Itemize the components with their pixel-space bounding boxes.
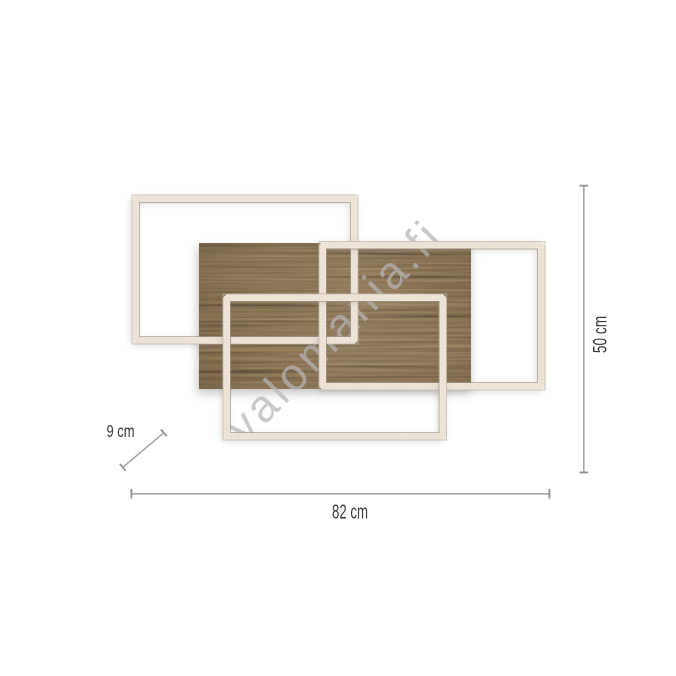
svg-text:9 cm: 9 cm xyxy=(106,422,134,442)
svg-text:50 cm: 50 cm xyxy=(589,316,611,353)
svg-text:82 cm: 82 cm xyxy=(332,501,368,523)
